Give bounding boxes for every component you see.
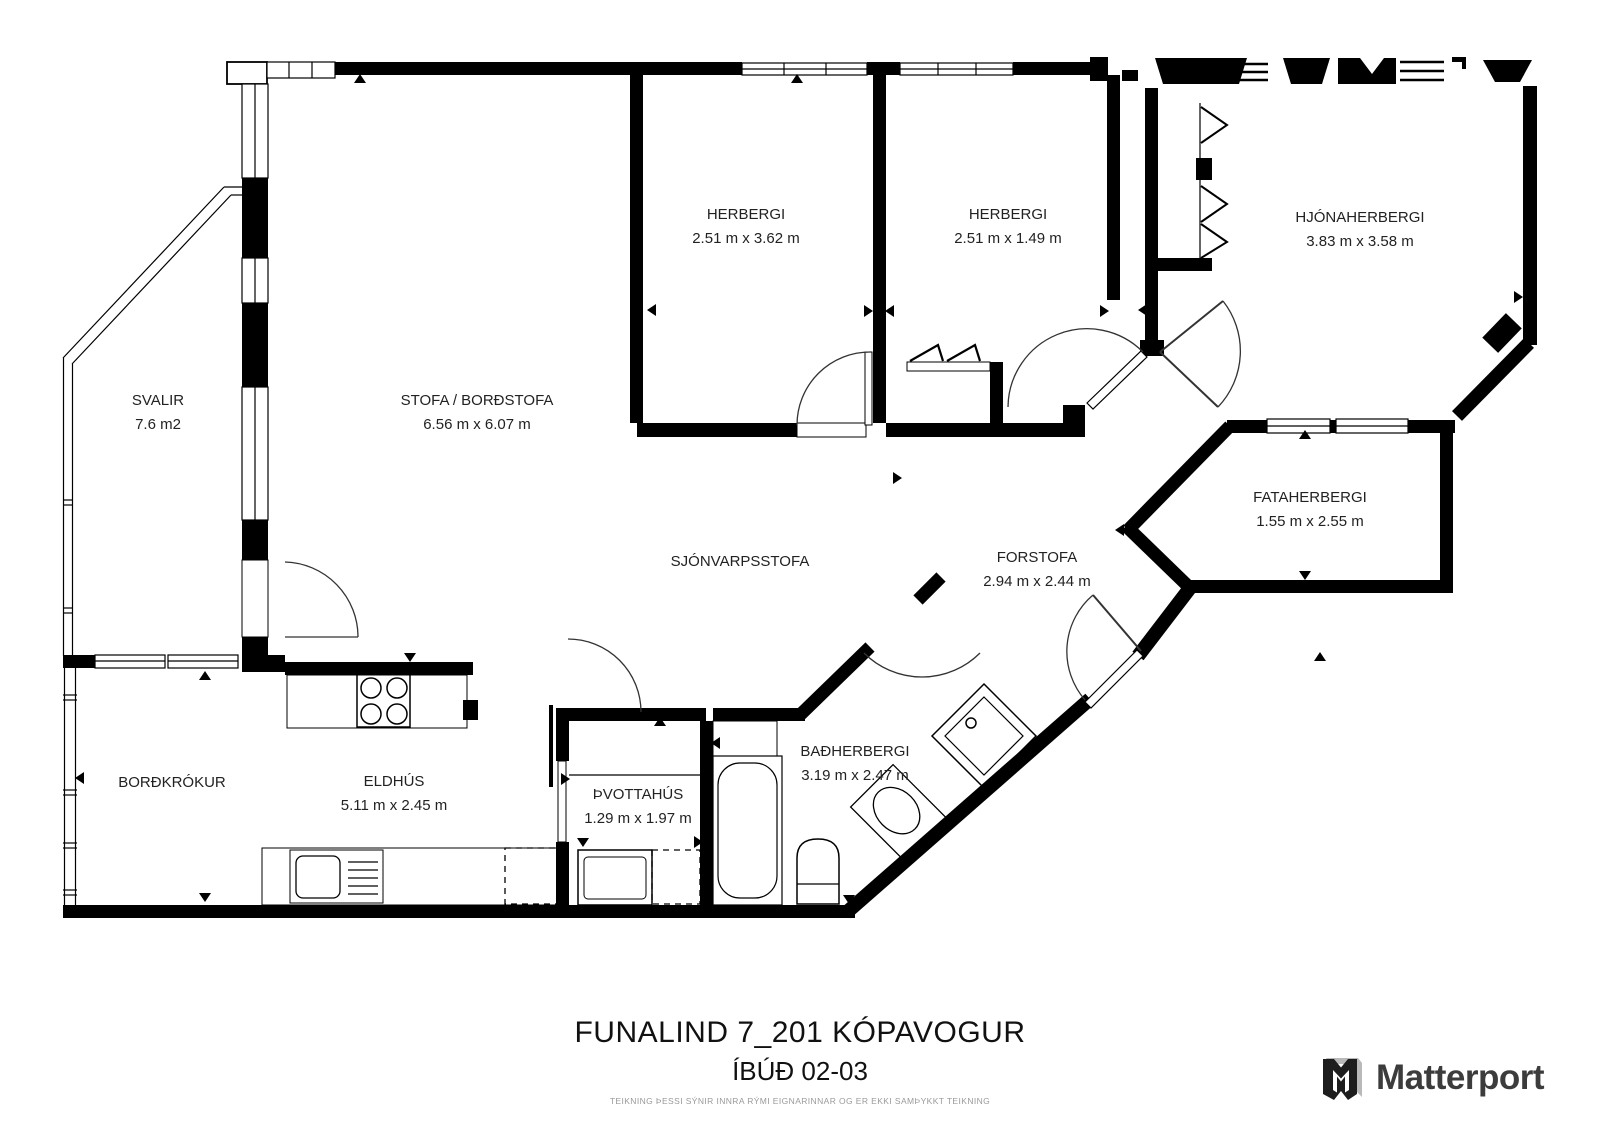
- neighbor-unit-fragments: [1090, 57, 1532, 84]
- room-label-thvottahus: ÞVOTTAHÚS1.29 m x 1.97 m: [584, 783, 692, 831]
- door-arc-icon: [568, 639, 641, 712]
- shower-icon: [932, 684, 1036, 788]
- room-label-bordkrokur: BORÐKRÓKUR: [118, 771, 226, 795]
- room-name: BORÐKRÓKUR: [118, 771, 226, 795]
- direction-arrow-icon: [199, 571, 1311, 904]
- matterport-logo-icon: [1316, 1052, 1366, 1104]
- room-name: SJÓNVARPSSTOFA: [671, 550, 810, 574]
- dishwasher-icon: [652, 850, 700, 904]
- dishwasher-icon: [505, 848, 560, 904]
- room-dims: 7.6 m2: [132, 413, 184, 437]
- room-dims: 5.11 m x 2.45 m: [341, 794, 447, 818]
- room-label-herbergi-2: HERBERGI2.51 m x 1.49 m: [954, 203, 1062, 251]
- room-name: FATAHERBERGI: [1253, 486, 1367, 510]
- door-arc-icon: [1218, 301, 1240, 407]
- room-dims: 3.19 m x 2.47 m: [800, 764, 909, 788]
- closet-icon: [910, 345, 980, 361]
- room-label-eldhus: ELDHÚS5.11 m x 2.45 m: [341, 770, 447, 818]
- room-label-hjonaherbergi: HJÓNAHERBERGI3.83 m x 3.58 m: [1295, 206, 1424, 254]
- washing-machine-icon: [578, 850, 652, 905]
- room-name: HERBERGI: [692, 203, 800, 227]
- matterport-logo: Matterport: [1316, 1052, 1544, 1104]
- kitchen-counter: [287, 675, 467, 728]
- room-name: ÞVOTTAHÚS: [584, 783, 692, 807]
- bathtub-icon: [713, 721, 782, 905]
- plan-title: FUNALIND 7_201 KÓPAVOGUR: [0, 1016, 1600, 1050]
- kitchen-sink-icon: [290, 850, 383, 903]
- room-dims: 2.51 m x 1.49 m: [954, 227, 1062, 251]
- matterport-logo-text: Matterport: [1376, 1058, 1544, 1098]
- room-name: FORSTOFA: [983, 546, 1091, 570]
- room-label-badherbergi: BAÐHERBERGI3.19 m x 2.47 m: [800, 740, 909, 788]
- door-arc-icon: [797, 352, 870, 425]
- stove-icon: [357, 673, 410, 727]
- door-arc-icon: [1067, 595, 1093, 700]
- room-label-stofa: STOFA / BORÐSTOFA6.56 m x 6.07 m: [401, 389, 554, 437]
- room-label-forstofa: FORSTOFA2.94 m x 2.44 m: [983, 546, 1091, 594]
- room-dims: 6.56 m x 6.07 m: [401, 413, 554, 437]
- room-label-sjonvarpsstofa: SJÓNVARPSSTOFA: [671, 550, 810, 574]
- room-name: SVALIR: [132, 389, 184, 413]
- room-dims: 1.55 m x 2.55 m: [1253, 510, 1367, 534]
- toilet-icon: [797, 839, 839, 904]
- room-label-fataherbergi: FATAHERBERGI1.55 m x 2.55 m: [1253, 486, 1367, 534]
- wardrobe-icon: [1200, 103, 1227, 258]
- room-dims: 2.94 m x 2.44 m: [983, 570, 1091, 594]
- room-label-herbergi-1: HERBERGI2.51 m x 3.62 m: [692, 203, 800, 251]
- room-label-svalir: SVALIR7.6 m2: [132, 389, 184, 437]
- door-arc-icon: [285, 562, 358, 637]
- door-arcs: [285, 301, 1240, 712]
- room-name: ELDHÚS: [341, 770, 447, 794]
- door-arc-icon: [864, 653, 980, 677]
- room-dims: 1.29 m x 1.97 m: [584, 807, 692, 831]
- room-name: HERBERGI: [954, 203, 1062, 227]
- room-name: STOFA / BORÐSTOFA: [401, 389, 554, 413]
- room-name: HJÓNAHERBERGI: [1295, 206, 1424, 230]
- room-dims: 3.83 m x 3.58 m: [1295, 230, 1424, 254]
- balcony-railing: [63, 187, 242, 905]
- room-name: BAÐHERBERGI: [800, 740, 909, 764]
- room-dims: 2.51 m x 3.62 m: [692, 227, 800, 251]
